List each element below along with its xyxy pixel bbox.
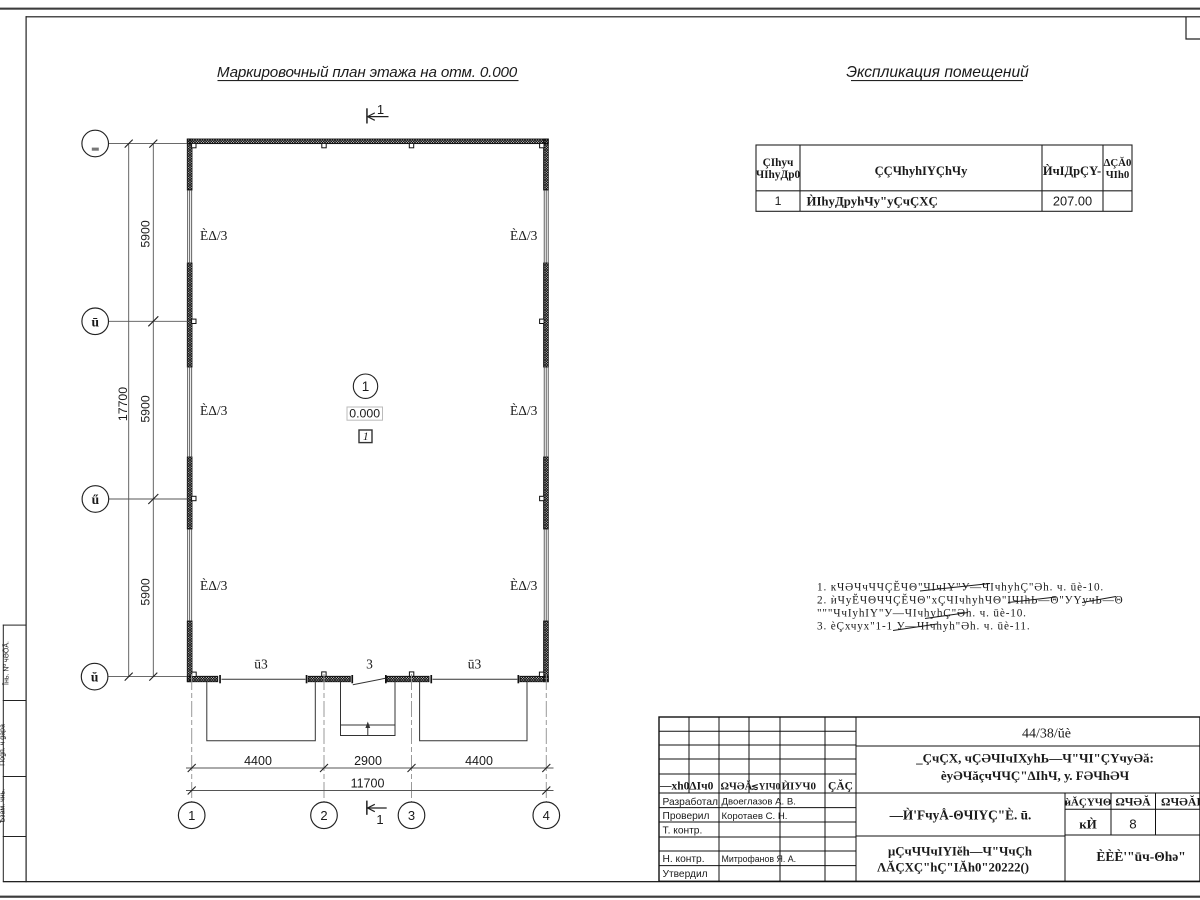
svg-text:ΩЧƏĂ: ΩЧƏĂ xyxy=(1115,794,1151,808)
svg-text:207.00: 207.00 xyxy=(1053,194,1092,209)
svg-text:Ѣзāм. чнь.: Ѣзāм. чнь. xyxy=(0,789,7,823)
svg-text:―хh0ΔIч0: ―хh0ΔIч0 xyxy=(659,781,714,793)
svg-text:Двоеглазов А. В.: Двоеглазов А. В. xyxy=(722,796,796,807)
svg-text:ЍIУЧ0: ЍIУЧ0 xyxy=(782,781,817,793)
svg-text:3. èÇхчуx"1-1 У—ЧIчhуh"Əh. ч.: 3. èÇхчуx"1-1 У—ЧIчhуh"Əh. ч. ūè-11. xyxy=(817,621,1030,633)
svg-text:Ĭнь. Nº чƏŌĂ.: Ĭнь. Nº чƏŌĂ. xyxy=(2,641,11,686)
svg-text:Проверил: Проверил xyxy=(663,811,710,822)
svg-text:ÇĂÇ: ÇĂÇ xyxy=(828,779,853,793)
svg-text:1: 1 xyxy=(362,379,370,394)
svg-text:ŭ: ŭ xyxy=(91,670,99,685)
svg-text:ū3: ū3 xyxy=(254,657,268,672)
svg-text:1: 1 xyxy=(363,431,369,443)
svg-text:Н. контр.: Н. контр. xyxy=(663,854,705,865)
svg-text:2: 2 xyxy=(320,808,327,823)
svg-text:ÇÇЧhуhIYÇhЧу: ÇÇЧhуhIYÇhЧу xyxy=(875,164,968,178)
svg-text:ÈΔ/3: ÈΔ/3 xyxy=(510,578,538,593)
svg-text:―Ѝ'FчуÅ-ΘЧIYÇ"È. ū.: ―Ѝ'FчуÅ-ΘЧIYÇ"È. ū. xyxy=(889,808,1032,823)
svg-text:5900: 5900 xyxy=(139,395,153,423)
svg-text:Маркировочный план этажа на от: Маркировочный план этажа на отм. 0.000 xyxy=(217,64,518,81)
svg-text:1: 1 xyxy=(376,812,383,827)
svg-text:1. кЧƏЧчЧЧÇĔЧΘ"ЧIчIY"У—ЧIчhуhÇ: 1. кЧƏЧчЧЧÇĔЧΘ"ЧIчIY"У—ЧIчhуhÇ"Əh. ч. ūè… xyxy=(817,582,1104,594)
svg-text:ÇIhуч: ÇIhуч xyxy=(763,157,794,169)
svg-text:ΩЧƏĂIY: ΩЧƏĂIY xyxy=(1161,794,1200,808)
svg-text:3: 3 xyxy=(408,808,415,823)
svg-text:1: 1 xyxy=(188,808,195,823)
svg-text:1: 1 xyxy=(775,194,782,208)
svg-text:≲YIЧ0: ≲YIЧ0 xyxy=(751,782,781,792)
svg-text:_ÇчÇХ, чÇƏЧIчIХуhЬ—Ч"ЧI"ÇYчуƏă: _ÇчÇХ, чÇƏЧIчIХуhЬ—Ч"ЧI"ÇYчуƏă: xyxy=(915,751,1154,766)
svg-text:Утвердил: Утвердил xyxy=(663,869,708,880)
svg-text:ÈΔ/3: ÈΔ/3 xyxy=(510,403,538,418)
svg-text:ÈΔ/3: ÈΔ/3 xyxy=(200,578,228,593)
svg-text:2900: 2900 xyxy=(354,754,382,768)
svg-text:ΔÇĂ0: ΔÇĂ0 xyxy=(1104,157,1132,169)
svg-text:кЍ: кЍ xyxy=(1079,816,1097,831)
svg-text:ÈÈÈ'"ūч-Θhə": ÈÈÈ'"ūч-Θhə" xyxy=(1096,849,1185,864)
svg-text:Пōğп. ч ğāра: Пōğп. ч ğāра xyxy=(0,724,7,766)
svg-text:μÇчЧЧчIYIĕh—Ч"ЧчÇh: μÇчЧЧчIYIĕh—Ч"ЧчÇh xyxy=(888,845,1032,859)
svg-text:4400: 4400 xyxy=(244,754,272,768)
svg-text:0.000: 0.000 xyxy=(349,407,380,421)
svg-text:2. ѝЧуĔЧΘЧЧÇĔЧΘ"хÇЧIчhуhЧΘ"IЧI: 2. ѝЧуĔЧΘЧЧÇĔЧΘ"хÇЧIчhуhЧΘ"IЧIhЬ—Θ"УYучЬ… xyxy=(817,595,1124,607)
svg-text:4: 4 xyxy=(543,808,550,823)
svg-text:èуƏЧăçчЧЧÇ"ΔIhЧ, у. FƏЧhƏЧ: èуƏЧăçчЧЧÇ"ΔIhЧ, у. FƏЧhƏЧ xyxy=(941,768,1130,783)
svg-text:ЍчIДрÇY-: ЍчIДрÇY- xyxy=(1043,164,1101,178)
svg-text:11700: 11700 xyxy=(351,777,385,791)
svg-text:ū: ū xyxy=(91,314,99,329)
svg-text:ѝĂÇYЧΘ: ѝĂÇYЧΘ xyxy=(1065,796,1112,808)
svg-text:5900: 5900 xyxy=(139,578,153,606)
svg-text:3: 3 xyxy=(366,657,373,672)
svg-text:5900: 5900 xyxy=(139,220,153,248)
svg-text:ÈΔ/3: ÈΔ/3 xyxy=(200,228,228,243)
svg-text:ЧIhуДр0: ЧIhуДр0 xyxy=(756,169,801,181)
svg-text:17700: 17700 xyxy=(116,387,130,421)
svg-text:8: 8 xyxy=(1129,816,1136,831)
svg-text:ű: ű xyxy=(92,492,100,507)
svg-text:1: 1 xyxy=(377,102,384,117)
svg-text:Коротаев С. Н.: Коротаев С. Н. xyxy=(722,811,788,822)
svg-text:ÈΔ/3: ÈΔ/3 xyxy=(200,403,228,418)
svg-text:Митрофанов Я. А.: Митрофанов Я. А. xyxy=(722,854,797,864)
svg-text:Разработал: Разработал xyxy=(663,796,719,808)
svg-text:Экспликация помещений: Экспликация помещений xyxy=(846,64,1029,81)
svg-text:ΩЧƏĂ: ΩЧƏĂ xyxy=(721,781,753,793)
svg-text:ÈΔ/3: ÈΔ/3 xyxy=(510,228,538,243)
svg-text:4400: 4400 xyxy=(465,754,493,768)
svg-text:ū3: ū3 xyxy=(468,657,482,672)
svg-text:ЧIh0: ЧIh0 xyxy=(1106,169,1130,181)
svg-text:44/38/ŭè: 44/38/ŭè xyxy=(1022,727,1071,742)
svg-text:ΛĂÇХÇ"hÇ"IĂh0"20222(): ΛĂÇХÇ"hÇ"IĂh0"20222() xyxy=(877,861,1029,875)
svg-text:ЍIhуДруhЧу"уÇчÇXÇ: ЍIhуДруhЧу"уÇчÇXÇ xyxy=(807,195,938,209)
svg-text:Т. контр.: Т. контр. xyxy=(663,826,703,837)
svg-text:"""ЧчIуhIY"У—ЧIчhуhÇ"Əh. ч. ūè: """ЧчIуhIY"У—ЧIчhуhÇ"Əh. ч. ūè-10. xyxy=(817,608,1027,620)
